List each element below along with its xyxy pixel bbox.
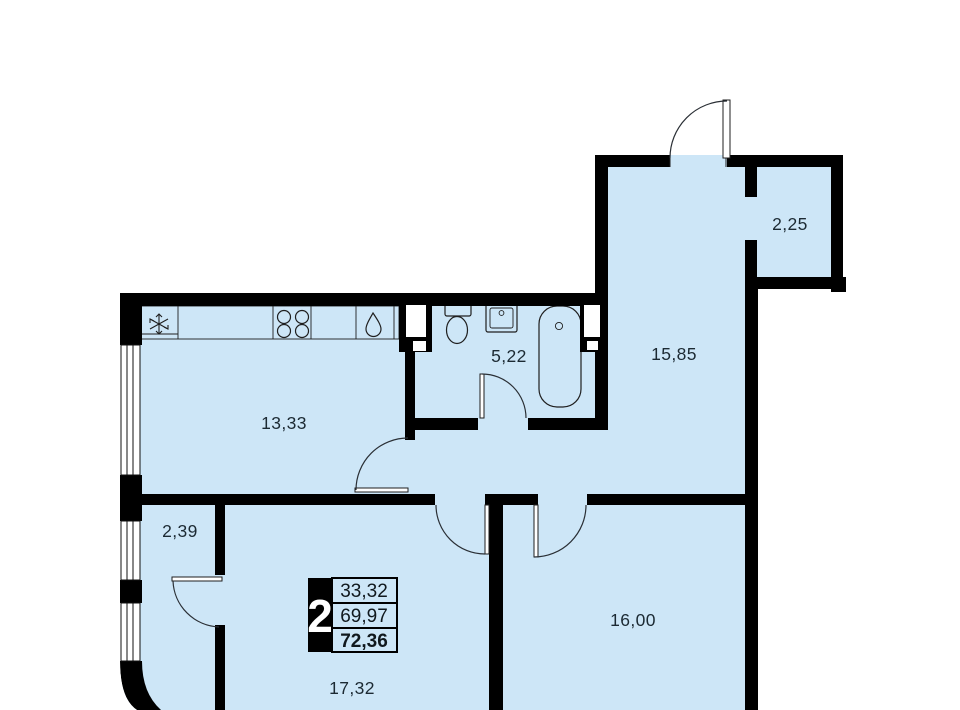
window xyxy=(121,603,140,661)
wall-balcony-right xyxy=(831,155,843,288)
wall-balcony-bottom xyxy=(755,277,843,289)
unit-living-area: 33,32 xyxy=(340,581,388,602)
wall-left-b xyxy=(120,475,142,521)
vent-shaft xyxy=(584,305,600,337)
label-kitchen-living: 13,33 xyxy=(261,413,307,433)
label-balcony: 2,25 xyxy=(772,214,808,234)
vent-shaft xyxy=(413,341,426,351)
wall-rooms-divider xyxy=(489,502,503,710)
label-wardrobe: 2,39 xyxy=(162,521,198,541)
unit-total-area: 72,36 xyxy=(340,631,388,652)
wall-bathroom-bottom-right xyxy=(528,418,608,430)
vent-shaft xyxy=(587,341,598,350)
wall-bathroom-bottom-left xyxy=(407,418,478,430)
label-bathroom: 5,22 xyxy=(491,346,527,366)
wall-entry-top-right xyxy=(727,155,843,167)
entry-corridor-floor xyxy=(597,157,756,302)
unit-info-box: 2 33,32 69,97 72,36 xyxy=(307,578,397,652)
wall-top xyxy=(120,293,608,306)
wall-left-c xyxy=(120,580,142,603)
wall-wardrobe-upper xyxy=(215,502,225,575)
label-hallway: 15,85 xyxy=(651,344,697,364)
wall-divider-left xyxy=(120,494,435,505)
wall-balcony-partition-upper xyxy=(745,167,757,197)
wall-corridor-left xyxy=(595,155,608,306)
window xyxy=(121,345,140,475)
floor-areas xyxy=(122,155,841,710)
wall-wardrobe-lower xyxy=(215,625,225,710)
vent-shaft xyxy=(406,305,426,337)
entry-doorway-floor xyxy=(670,155,727,168)
window xyxy=(121,521,140,580)
wall-left-a xyxy=(120,293,142,345)
label-living-room: 17,32 xyxy=(329,678,375,698)
unit-rooms-count: 2 xyxy=(307,590,333,642)
floor-plan-svg: 13,33 5,22 15,85 2,25 2,39 16,00 17,32 2… xyxy=(0,0,960,710)
wall-right xyxy=(745,277,758,710)
floor-plan: 13,33 5,22 15,85 2,25 2,39 16,00 17,32 2… xyxy=(0,0,960,710)
wall-divider-right xyxy=(587,494,758,505)
label-bedroom: 16,00 xyxy=(610,610,656,630)
wall-balcony-corner xyxy=(831,277,846,292)
wall-entry-top-left xyxy=(595,155,670,167)
unit-area-without-balcony: 69,97 xyxy=(340,606,388,627)
